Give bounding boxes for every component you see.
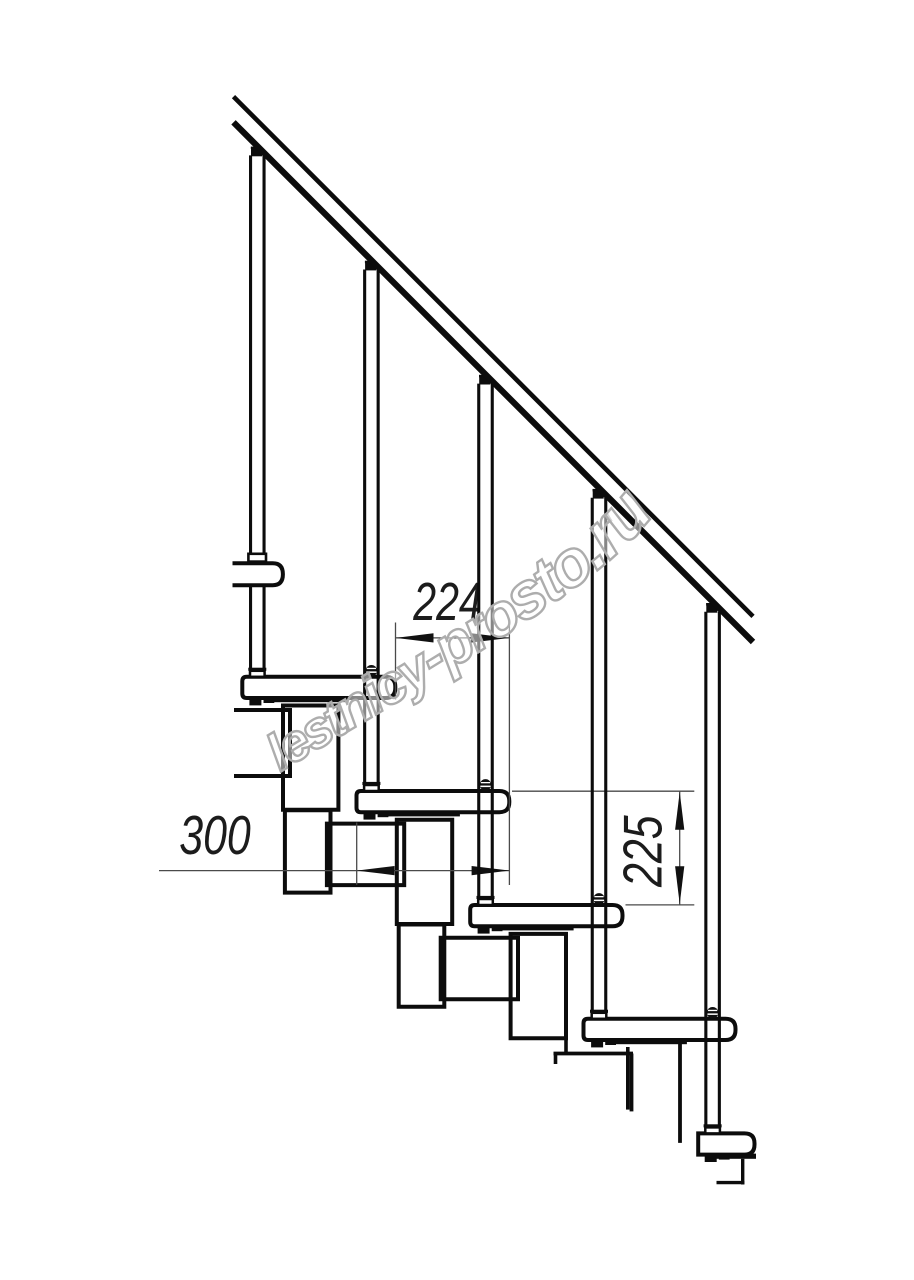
svg-text:225: 225 xyxy=(612,815,673,888)
svg-text:300: 300 xyxy=(179,805,251,866)
